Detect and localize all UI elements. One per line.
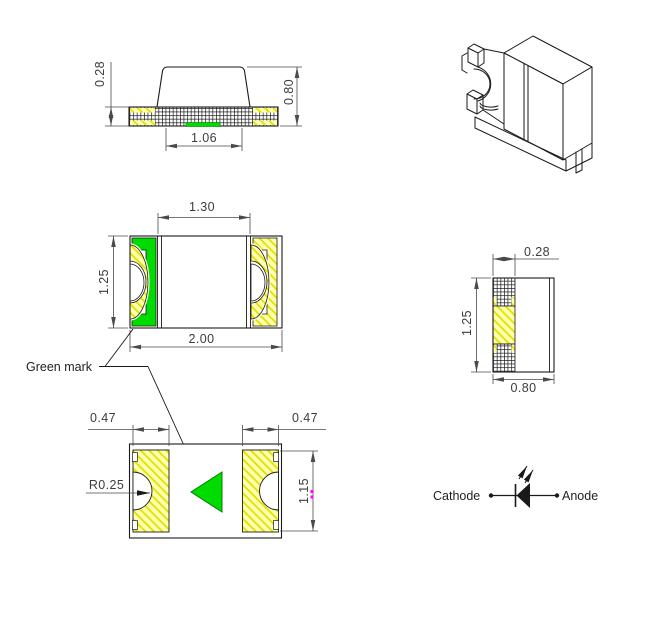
green-mark-stripe — [186, 123, 220, 127]
terminal-plating — [253, 121, 277, 126]
pad-corner-notch — [274, 453, 279, 462]
lens-dome — [157, 67, 250, 107]
polarity-symbol — [489, 466, 559, 508]
end-terminal-width-dim: 0.28 — [514, 245, 560, 259]
green-mark-label: Green mark — [26, 360, 92, 374]
perspective-view — [462, 36, 592, 173]
plating-notch — [511, 297, 514, 305]
plating-notch — [494, 297, 497, 305]
light-emission-arrows — [519, 466, 533, 483]
end-view — [471, 254, 559, 384]
terminal-plating — [253, 108, 277, 113]
top-inner-width-dim: 1.30 — [179, 200, 225, 214]
pad-corner-notch — [274, 521, 279, 530]
terminal-plating — [130, 121, 155, 126]
side-height-dim: 0.80 — [282, 69, 296, 115]
side-thickness-dim: 0.28 — [93, 51, 107, 97]
bottom-notch-radius-dim: R0.25 — [84, 478, 130, 492]
anode-label: Anode — [562, 489, 598, 503]
bottom-pad-right-dim: 0.47 — [282, 411, 328, 425]
pad-corner-notch — [132, 521, 137, 530]
castellation-plating-middle — [493, 306, 515, 344]
drawing-canvas: 0.28 0.80 1.06 1.30 1.25 2.00 0.28 1.25 … — [0, 0, 659, 625]
diode-triangle — [517, 483, 531, 508]
terminal-plating — [130, 108, 155, 113]
pad-corner-notch — [132, 453, 137, 462]
bottom-pad-left-dim: 0.47 — [80, 411, 126, 425]
plating-notch — [494, 345, 497, 353]
end-width-dim: 0.80 — [501, 381, 547, 395]
end-depth-dim: 1.25 — [460, 300, 474, 346]
side-bottom-gap-dim: 1.06 — [181, 131, 227, 145]
cathode-label: Cathode — [433, 489, 480, 503]
plating-notch — [511, 345, 514, 353]
top-depth-dim: 1.25 — [97, 259, 111, 305]
top-width-dim: 2.00 — [179, 332, 225, 346]
bottom-pad-length-dim: 1.15 — [297, 468, 311, 514]
